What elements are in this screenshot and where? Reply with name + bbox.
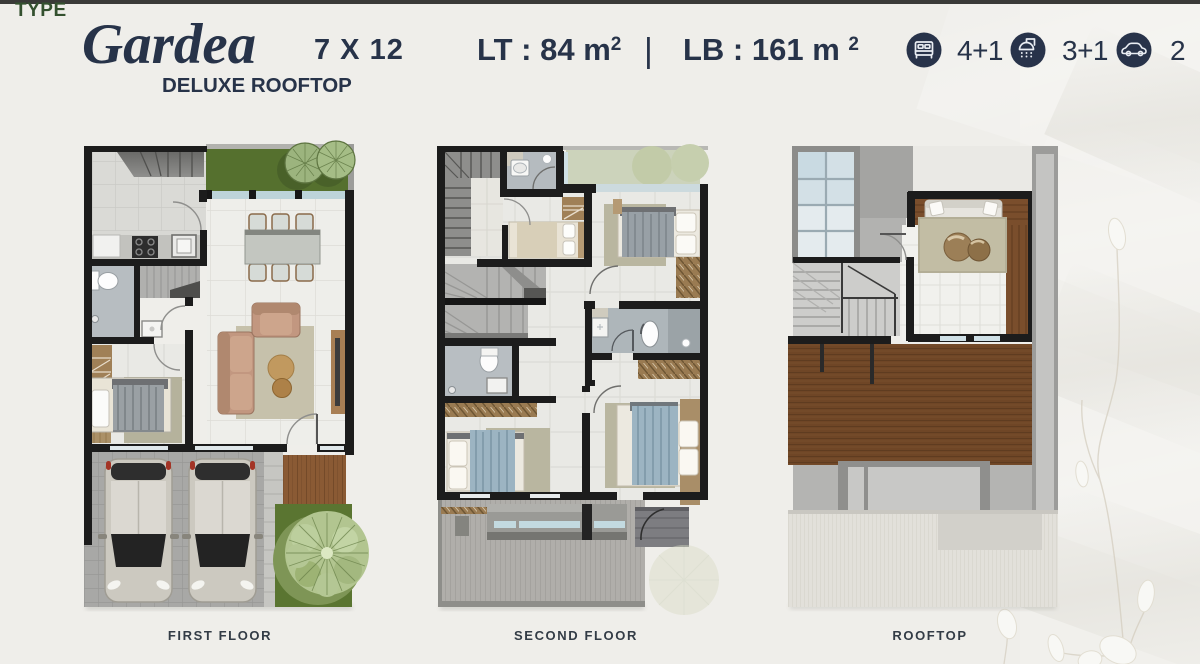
svg-text:DELUXE ROOFTOP: DELUXE ROOFTOP [162, 74, 352, 97]
svg-text:|: | [644, 32, 653, 70]
svg-text:4+1: 4+1 [957, 35, 1003, 66]
svg-text:Gardea: Gardea [82, 13, 256, 76]
svg-text:FIRST FLOOR: FIRST FLOOR [168, 628, 272, 643]
svg-text:3+1: 3+1 [1062, 35, 1108, 66]
svg-text:2: 2 [1170, 35, 1186, 66]
svg-text:7 X 12: 7 X 12 [314, 34, 404, 66]
svg-text:SECOND FLOOR: SECOND FLOOR [514, 628, 638, 643]
svg-text:ROOFTOP: ROOFTOP [892, 628, 967, 643]
svg-text:LT : 84 m2: LT : 84 m2 [477, 32, 621, 67]
svg-text:LB : 161 m 2: LB : 161 m 2 [683, 32, 859, 67]
svg-text:TYPE: TYPE [15, 0, 67, 21]
